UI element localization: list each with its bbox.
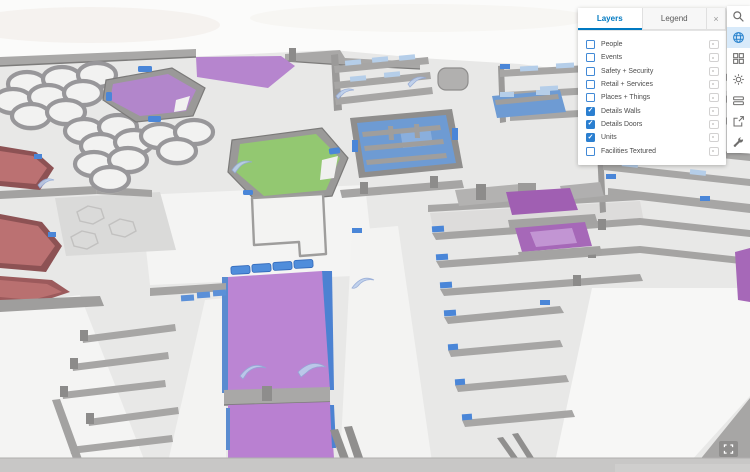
check-icon: ✓ <box>587 133 594 142</box>
map-toolbar <box>727 6 750 153</box>
daylight-sun-button[interactable] <box>727 69 750 90</box>
layer-checkbox[interactable]: ✓ <box>586 147 595 156</box>
layer-label: Events <box>601 54 622 61</box>
search-icon <box>732 10 745 23</box>
fullscreen-button[interactable] <box>719 441 738 457</box>
tab-legend[interactable]: Legend <box>642 8 708 30</box>
layer-checkbox[interactable]: ✓ <box>586 40 595 49</box>
layer-checkbox[interactable]: ✓ <box>586 80 595 89</box>
globe-icon <box>732 31 745 44</box>
search-button[interactable] <box>727 6 750 27</box>
layer-label: Retail + Services <box>601 81 653 88</box>
layer-checkbox[interactable]: ✓ <box>586 93 595 102</box>
layer-row-events[interactable]: ✓ Events <box>586 51 719 64</box>
wrench-icon <box>732 136 745 149</box>
check-icon: ✓ <box>587 106 594 115</box>
panel-tabs: Layers Legend × <box>578 8 726 31</box>
layer-options-icon[interactable] <box>709 40 719 49</box>
unit-green <box>228 128 348 203</box>
gallery-icon <box>732 94 745 107</box>
layer-options-icon[interactable] <box>709 120 719 129</box>
basemap-grid-icon <box>732 52 745 65</box>
layer-row-people[interactable]: ✓ People <box>586 38 719 51</box>
layer-checkbox[interactable]: ✓ <box>586 133 595 142</box>
layers-panel: Layers Legend × ✓ People ✓ Events ✓ Safe… <box>578 8 726 165</box>
globe-button[interactable] <box>727 27 750 48</box>
layer-options-icon[interactable] <box>709 147 719 156</box>
tools-button[interactable] <box>727 132 750 153</box>
layer-options-icon[interactable] <box>709 67 719 76</box>
layer-list: ✓ People ✓ Events ✓ Safety + Security ✓ … <box>578 31 726 165</box>
close-icon[interactable]: × <box>707 8 726 30</box>
basemap-grid-button[interactable] <box>727 48 750 69</box>
check-icon: ✓ <box>587 119 594 128</box>
layer-checkbox[interactable]: ✓ <box>586 53 595 62</box>
layer-label: Safety + Security <box>601 68 653 75</box>
app-window: { "panel": { "tabs": [ {"label": "Layers… <box>0 0 750 472</box>
layer-options-icon[interactable] <box>709 107 719 116</box>
sun-icon <box>732 73 745 86</box>
layer-row-safety-security[interactable]: ✓ Safety + Security <box>586 65 719 78</box>
layer-label: Details Walls <box>601 108 641 115</box>
share-icon <box>732 115 745 128</box>
layer-row-details-doors[interactable]: ✓ Details Doors <box>586 118 719 131</box>
gallery-button[interactable] <box>727 90 750 111</box>
layer-checkbox[interactable]: ✓ <box>586 107 595 116</box>
layer-row-facilities-textured[interactable]: ✓ Facilities Textured <box>586 144 719 157</box>
layer-checkbox[interactable]: ✓ <box>586 120 595 129</box>
layer-label: Places + Things <box>601 94 650 101</box>
tab-layers[interactable]: Layers <box>578 8 642 30</box>
layer-checkbox[interactable]: ✓ <box>586 67 595 76</box>
layer-label: Details Doors <box>601 121 642 128</box>
layer-label: Facilities Textured <box>601 148 656 155</box>
layer-label: People <box>601 41 622 48</box>
layer-row-details-walls[interactable]: ✓ Details Walls <box>586 104 719 117</box>
layer-row-units[interactable]: ✓ Units <box>586 131 719 144</box>
layer-options-icon[interactable] <box>709 93 719 102</box>
layer-row-retail-services[interactable]: ✓ Retail + Services <box>586 78 719 91</box>
layer-label: Units <box>601 134 617 141</box>
fullscreen-icon <box>723 444 734 454</box>
layer-options-icon[interactable] <box>709 53 719 62</box>
layer-options-icon[interactable] <box>709 80 719 89</box>
layer-options-icon[interactable] <box>709 133 719 142</box>
share-button[interactable] <box>727 111 750 132</box>
layer-row-places-things[interactable]: ✓ Places + Things <box>586 91 719 104</box>
